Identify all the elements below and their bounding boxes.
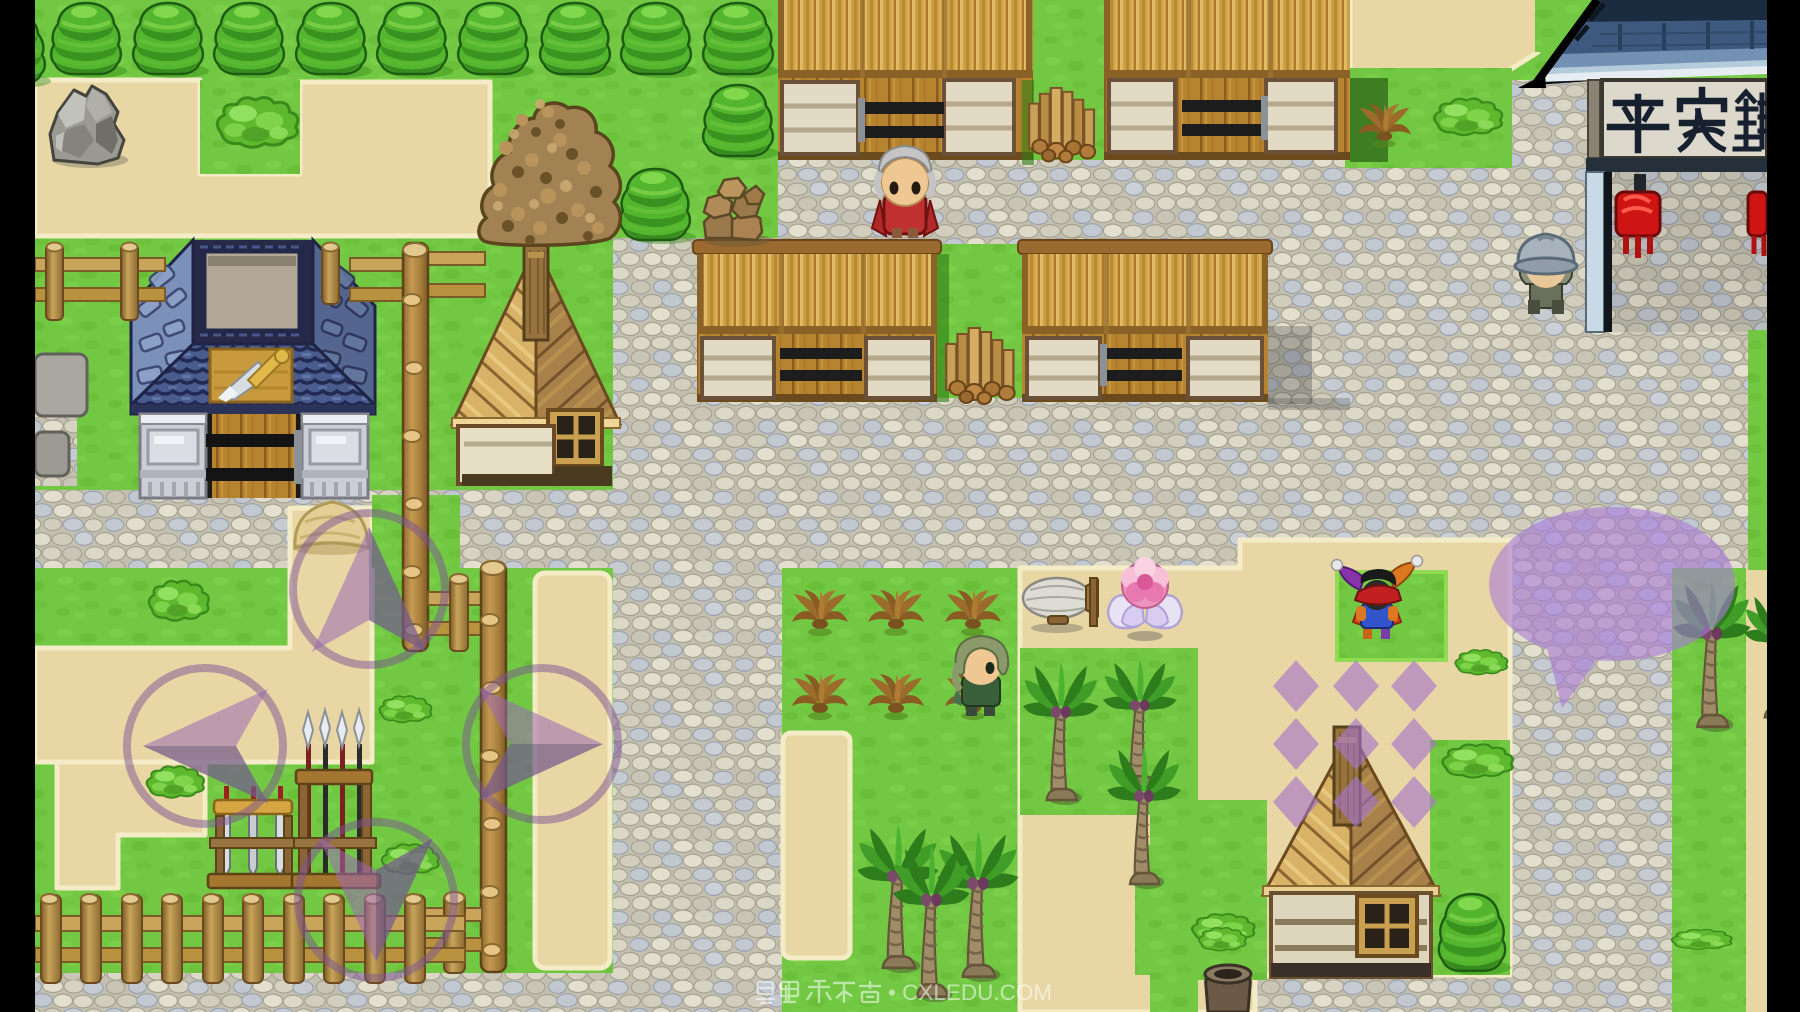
svg-text:• CXLEDU.COM: • CXLEDU.COM [888,980,1052,1005]
